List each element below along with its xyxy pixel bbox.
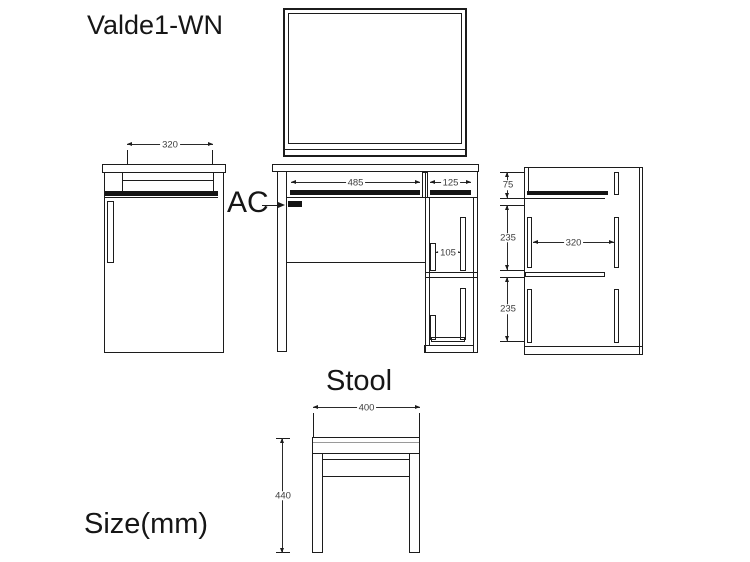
desk-left-leg [277, 172, 287, 352]
extension-line [212, 150, 213, 165]
arrow-right-icon [415, 405, 420, 409]
dim-stool-width: 400 [313, 403, 420, 413]
door-divider-line [425, 272, 478, 273]
arrow-up-icon [505, 172, 509, 177]
dim-tick [500, 198, 524, 199]
side-right-top-inner-line [528, 168, 529, 192]
side-right-mid-strip-right [614, 217, 619, 268]
arrow-down-icon [505, 336, 509, 341]
side-right-shelf-line [525, 198, 605, 199]
model-name-label: Valde1-WN [87, 11, 223, 39]
side-left-underline [104, 197, 218, 198]
stool-left-leg [312, 453, 323, 553]
arrow-down-icon [505, 265, 509, 270]
extension-line [419, 413, 420, 437]
side-right-mid-strip-left [527, 217, 532, 268]
door-divider-line [425, 277, 478, 278]
dim-value: 400 [357, 403, 377, 413]
ac-outlet [288, 201, 302, 207]
side-right-body [524, 167, 643, 355]
arrow-up-icon [280, 438, 284, 443]
ac-outlet-label: AC [227, 187, 269, 219]
extension-line [127, 150, 128, 165]
dim-value: 235 [498, 233, 518, 243]
dim-value: 235 [498, 304, 518, 314]
side-right-bottom-strip-left [527, 289, 532, 343]
dim-tick [500, 270, 524, 271]
arrow-up-icon [505, 205, 509, 210]
arrow-up-icon [505, 277, 509, 282]
stool-right-leg [409, 453, 420, 553]
upper-door-right-handle [460, 217, 466, 271]
furniture-dimension-diagram: Valde1-WN AC Stool Size(mm) 320 485 125 [0, 0, 750, 562]
side-right-bottom-strip-right [614, 289, 619, 343]
dim-stool-height: 440 [278, 438, 288, 553]
side-left-shelf-divider [122, 173, 123, 192]
dim-inner-depth: 320 [533, 238, 614, 248]
side-left-leg-strip [107, 201, 114, 263]
side-right-top-strip [614, 172, 619, 195]
mirror-base-bar [285, 149, 465, 150]
stool-seat-edge-line [313, 442, 419, 443]
ac-arrow-icon [278, 202, 285, 208]
desk-back-rail [287, 262, 425, 263]
dim-value: 105 [438, 248, 458, 258]
arrow-right-icon [208, 142, 213, 146]
side-left-shelf-bottom-bar [105, 191, 218, 196]
arrow-right-icon [609, 240, 614, 244]
stool-seat [312, 437, 420, 454]
side-left-body [104, 172, 224, 353]
dim-value: 485 [346, 178, 366, 188]
desk-tabletop [272, 164, 479, 172]
dim-middle-section-height: 235 [503, 205, 513, 270]
dim-value: 320 [564, 238, 584, 248]
ac-callout-line [262, 205, 279, 206]
dim-side-left-depth: 320 [127, 140, 213, 150]
side-left-shelf-line [122, 180, 214, 181]
arrow-left-icon [313, 405, 318, 409]
side-right-middle-shelf [525, 272, 605, 277]
side-right-shelf-bar [527, 191, 608, 195]
open-shelf-bottom-bar [290, 190, 420, 195]
size-unit-label: Size(mm) [84, 509, 208, 539]
dim-value: 320 [160, 140, 180, 150]
stool-apron-top-line [323, 459, 409, 460]
side-right-inner-edge [639, 168, 640, 354]
dim-top-section-height: 75 [503, 172, 513, 198]
arrow-left-icon [127, 142, 132, 146]
dim-value: 75 [501, 180, 516, 190]
stool-apron-bottom-line [323, 476, 409, 477]
dim-open-shelf-width: 485 [291, 178, 420, 188]
dim-handle-gap: 105 [436, 248, 460, 258]
extension-line [313, 413, 314, 437]
arrow-left-icon [291, 180, 296, 184]
lower-door-bottom-bar [431, 337, 465, 342]
arrow-left-icon [533, 240, 538, 244]
arrow-down-icon [505, 193, 509, 198]
dim-bottom-section-height: 235 [503, 277, 513, 341]
cabinet-plinth [424, 345, 474, 353]
lower-door-right-handle [460, 288, 466, 340]
mirror-frame-inner [288, 13, 462, 144]
stool-label: Stool [326, 366, 392, 396]
arrow-right-icon [415, 180, 420, 184]
dim-value: 440 [273, 491, 293, 501]
arrow-down-icon [280, 548, 284, 553]
side-right-bottom-rail [524, 346, 643, 355]
side-left-shelf-edge [213, 173, 214, 192]
dim-tick [500, 341, 524, 342]
